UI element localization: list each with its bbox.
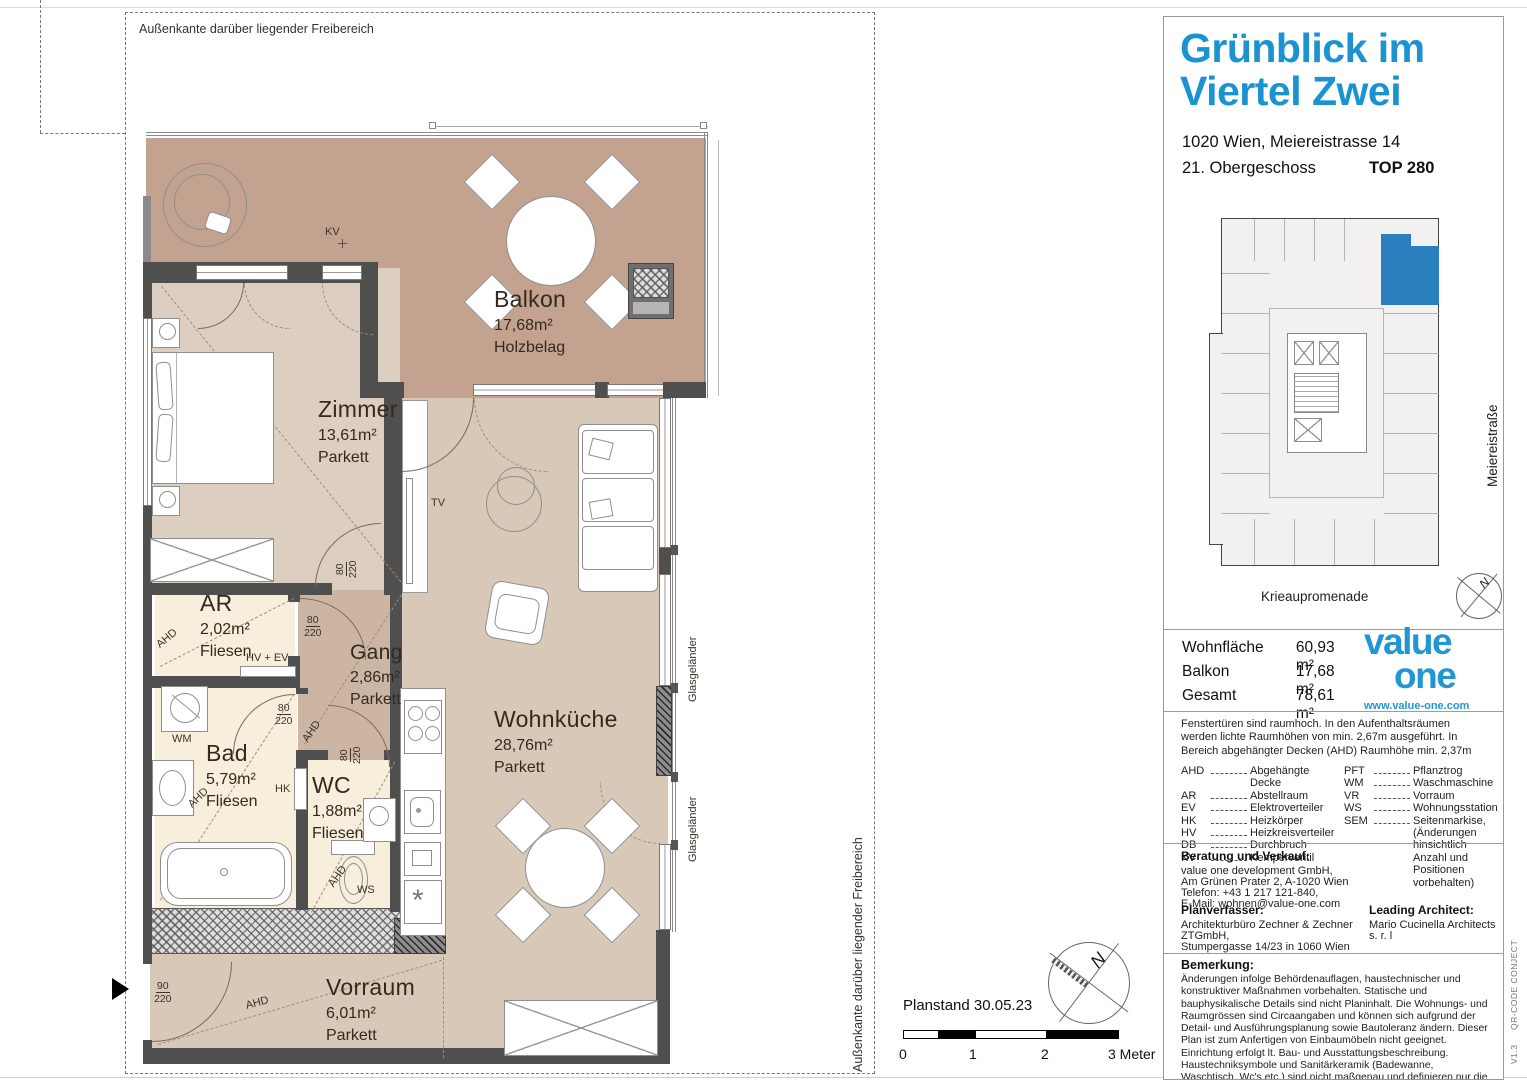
legend-desc: Abstellraum [1250, 790, 1341, 802]
unit-partition [1284, 219, 1285, 261]
unit-partition [1384, 313, 1439, 314]
door-dimension: 80220 [334, 560, 359, 578]
boundary-label-vertical: Außenkante darüber liegender Freibereich [851, 837, 865, 1072]
room-area: 13,61m² [318, 428, 398, 444]
legend-row: HVHeizkreisverteiler [1181, 827, 1341, 839]
balcony-railing-top [146, 132, 708, 136]
legend-abbr: HV [1181, 827, 1211, 839]
architect-line: Mario Cucinella Architects s. r. l [1369, 920, 1497, 942]
balcony-table [506, 196, 596, 286]
kv-label: KV [325, 226, 340, 238]
key-plan: Krieaupromenade [1209, 213, 1449, 565]
window [322, 265, 362, 280]
area-label: Wohnfläche [1182, 639, 1296, 663]
wall-segment [663, 382, 706, 398]
unit-partition [1222, 473, 1270, 474]
railing-post [671, 545, 678, 555]
elevator [1294, 418, 1322, 442]
glass-railing [672, 398, 676, 932]
room-floor: Fliesen [206, 794, 258, 810]
room-name: Balkon [494, 288, 566, 311]
coffee-table-small [497, 467, 535, 505]
room-label-bad: Bad 5,79m² Fliesen [206, 742, 258, 810]
glass-railing-label: Glasgeländer [687, 637, 699, 702]
bath-sink-basin [159, 770, 186, 806]
room-label-ar: AR 2,02m² Fliesen [200, 592, 252, 660]
ws-label: WS [357, 884, 375, 896]
legend-row: SEMSeitenmarkise, (Änderungen hinsichtli… [1344, 815, 1494, 889]
door-dimension: 80220 [338, 746, 363, 764]
utility-cabinet [240, 666, 296, 677]
legend-leader [1374, 802, 1410, 811]
balcony-wall-stub [143, 196, 151, 266]
room-floor: Parkett [350, 692, 403, 708]
value-one-logo: value one www.value-one.com [1364, 625, 1494, 712]
room-name: Vorraum [326, 976, 415, 999]
room-name: Zimmer [318, 398, 398, 421]
unit-partition [1222, 273, 1270, 274]
entrance-dimension: 90220 [154, 980, 172, 1005]
hk-label: HK [275, 783, 290, 795]
unit-partition [1222, 513, 1270, 514]
legend-leader [1211, 790, 1247, 799]
project-floor: 21. Obergeschoss [1182, 159, 1316, 178]
planter-top [633, 268, 669, 298]
planner-block: Architekturbüro Zechner & Zechner ZTGmbH… [1181, 920, 1366, 953]
compass: N [1048, 942, 1130, 1024]
door-height: 220 [351, 746, 363, 764]
wall-segment [296, 688, 308, 694]
scalebar-segment [975, 1030, 1047, 1039]
burner [425, 726, 440, 741]
room-floor: Parkett [494, 760, 618, 776]
awning-marker-2 [700, 122, 707, 129]
legend-desc: Pflanztrog [1413, 765, 1494, 777]
legend-row: WMWaschmaschine [1344, 777, 1494, 789]
radiator [294, 768, 307, 810]
legend-row: HKHeizkörper [1181, 815, 1341, 827]
project-title-line1: Grünblick im [1180, 27, 1490, 70]
unit-partition [1344, 219, 1345, 261]
legend-desc: Seitenmarkise, (Änderungen hinsichtlich … [1413, 815, 1494, 889]
armchair-seat [493, 593, 541, 636]
unit-partition [1222, 433, 1270, 434]
legend-leader [1211, 765, 1247, 774]
scale-tick-3: 3 Meter [1108, 1046, 1155, 1062]
area-row: Balkon17,68 m² [1182, 663, 1352, 687]
legend-abbr: WS [1344, 802, 1374, 814]
legend-leader [1374, 777, 1410, 786]
door-width: 80 [338, 748, 351, 762]
unit-partition [1254, 219, 1255, 261]
room-area: 2,02m² [200, 622, 252, 638]
highlighted-unit [1381, 234, 1411, 305]
scale-tick-1: 1 [969, 1046, 977, 1062]
window [659, 398, 671, 548]
contact-heading: Beratung und Verkauf: [1181, 849, 1310, 863]
project-title: Grünblick im Viertel Zwei [1180, 27, 1490, 114]
section-divider [1164, 843, 1503, 844]
unit-partition [1254, 519, 1255, 565]
area-label: Gesamt [1182, 687, 1296, 711]
legend-row: AHDAbgehängte Decke [1181, 765, 1341, 790]
scale-tick-2: 2 [1041, 1046, 1049, 1062]
info-panel: Grünblick im Viertel Zwei 1020 Wien, Mei… [1163, 16, 1504, 1080]
balcony-railing-right [704, 132, 708, 398]
door-dimension: 80220 [275, 702, 293, 727]
street-label-bottom: Krieaupromenade [1261, 589, 1368, 604]
room-label-zimmer: Zimmer 13,61m² Parkett [318, 398, 398, 466]
wc-sink-basin [369, 806, 389, 826]
burner [408, 726, 423, 741]
keyplan-compass: N [1456, 573, 1502, 619]
window [196, 265, 288, 280]
railing-post [671, 683, 678, 693]
door-width: 80 [277, 702, 291, 715]
building-wing [1209, 333, 1223, 545]
unit-partition [1384, 473, 1439, 474]
page-top-rule [0, 7, 1527, 8]
area-row: Gesamt78,61 m² [1182, 687, 1352, 711]
elevator [1294, 341, 1314, 365]
room-area: 1,88m² [312, 804, 364, 820]
project-address: 1020 Wien, Meiereistrasse 14 [1182, 133, 1400, 152]
street-label-right: Meiereistraße [1485, 404, 1500, 487]
legend-desc: Vorraum [1413, 790, 1494, 802]
planter-base [633, 302, 669, 314]
unit-partition [1334, 519, 1335, 565]
burner [408, 706, 423, 721]
unit-number: TOP 280 [1369, 159, 1434, 178]
legend-right-column: PFTPflanztrog WMWaschmaschine VRVorraum … [1344, 765, 1494, 889]
remark-text: Änderungen infolge Behördenauflagen, hau… [1181, 974, 1489, 1080]
sofa-cushion [582, 526, 654, 570]
room-floor: Parkett [326, 1028, 415, 1044]
window-height-note: Fenstertüren sind raumhoch. In den Aufen… [1181, 718, 1486, 758]
lamp [159, 323, 176, 340]
room-floor: Fliesen [312, 826, 364, 842]
area-row: Wohnfläche60,93 m² [1182, 639, 1352, 663]
room-area: 2,86m² [350, 670, 403, 686]
legend-abbr: PFT [1344, 765, 1374, 777]
railing-post [671, 772, 678, 782]
legend-desc: Elektroverteiler [1250, 802, 1341, 814]
room-name: AR [200, 592, 252, 615]
logo-word-one: one [1394, 659, 1494, 693]
awning-marker [429, 122, 436, 129]
extractor-symbol: * [412, 884, 424, 918]
room-floor: Holzbelag [494, 340, 566, 356]
legend-abbr: HK [1181, 815, 1211, 827]
wardrobe [150, 538, 274, 582]
window [659, 844, 671, 930]
legend-abbr: VR [1344, 790, 1374, 802]
unit-partition [1384, 353, 1439, 354]
scalebar-segment [903, 1030, 939, 1039]
area-value: 78,61 m² [1296, 687, 1352, 711]
legend-desc: Abgehängte Decke [1250, 765, 1341, 790]
throw-pillow [589, 498, 614, 520]
legend-row: EVElektroverteiler [1181, 802, 1341, 814]
boundary-label: Außenkante darüber liegender Freibereich [139, 22, 374, 36]
door-height: 220 [154, 993, 172, 1005]
legend-leader [1374, 790, 1410, 799]
highlighted-unit-2 [1411, 246, 1439, 305]
tv-panel [406, 478, 413, 584]
remark-heading: Bemerkung: [1181, 958, 1254, 972]
burner [425, 706, 440, 721]
window [473, 384, 597, 396]
unit-partition [1374, 519, 1375, 565]
awning-line [432, 126, 708, 127]
window [607, 384, 665, 396]
hv-ev-label: HV + EV [246, 652, 289, 664]
dishwasher-symbol [412, 850, 432, 866]
staircase [1294, 373, 1339, 413]
room-floor: Parkett [318, 450, 398, 466]
door-height: 220 [275, 715, 293, 727]
planner-line: Architekturbüro Zechner & Zechner ZTGmbH… [1181, 920, 1366, 942]
outer-edge-line [718, 140, 719, 396]
room-name: WC [312, 774, 364, 797]
area-table: Wohnfläche60,93 m² Balkon17,68 m² Gesamt… [1182, 639, 1352, 711]
legend-row: WSWohnungsstation [1344, 802, 1494, 814]
edge-version-label: QR-CODE CONJECT [1509, 940, 1519, 1030]
lamp [159, 491, 176, 508]
wm-label: WM [172, 733, 192, 745]
plan-date: Planstand 30.05.23 [903, 997, 1032, 1014]
wall-segment-insulated [656, 686, 672, 776]
legend-abbr: AR [1181, 790, 1211, 802]
unit-partition [1294, 519, 1295, 565]
kv-valve-icon-v [342, 239, 343, 248]
tv-label: TV [431, 497, 445, 509]
architect-heading: Leading Architect: [1369, 903, 1474, 917]
unit-partition [1384, 433, 1439, 434]
unit-partition [1222, 353, 1270, 354]
legend-leader [1374, 765, 1410, 774]
bed-headboard-line [176, 353, 177, 483]
planner-line: Stumpergasse 14/23 in 1060 Wien [1181, 942, 1366, 953]
scale-tick-0: 0 [899, 1046, 907, 1062]
room-label-balkon: Balkon 17,68m² Holzbelag [494, 288, 566, 356]
window [143, 318, 152, 506]
room-boundary-dashed [443, 952, 444, 1058]
sink-basin [410, 797, 434, 827]
wall-segment [659, 548, 671, 574]
legend-leader [1374, 815, 1410, 824]
wall-segment [656, 930, 670, 1050]
door-height: 220 [304, 627, 322, 639]
unit-partition [1222, 313, 1270, 314]
dashed-boundary-fragment-v [40, 0, 41, 133]
room-name: Gang [350, 642, 403, 663]
legend-leader [1211, 802, 1247, 811]
door-width: 80 [334, 562, 347, 576]
door-dimension: 80220 [304, 614, 322, 639]
room-area: 17,68m² [494, 318, 566, 334]
bathtub-drain [220, 868, 228, 876]
unit-partition [1314, 219, 1315, 261]
glass-railing-label: Glasgeländer [687, 797, 699, 862]
sink-drain [416, 808, 421, 813]
entrance-arrow-icon [112, 978, 129, 1000]
room-name: Wohnküche [494, 708, 618, 731]
legend-desc: Waschmaschine [1413, 777, 1494, 789]
elevator [1319, 341, 1339, 365]
room-label-vorraum: Vorraum 6,01m² Parkett [326, 976, 415, 1044]
room-area: 5,79m² [206, 772, 258, 788]
area-value: 17,68 m² [1296, 663, 1352, 687]
room-label-wohnkueche: Wohnküche 28,76m² Parkett [494, 708, 618, 776]
wall-segment [306, 750, 328, 760]
legend-abbr: EV [1181, 802, 1211, 814]
planner-heading: Planverfasser: [1181, 903, 1264, 917]
area-label: Balkon [1182, 663, 1296, 687]
legend-abbr: WM [1344, 777, 1374, 789]
legend-row: VRVorraum [1344, 790, 1494, 802]
room-label-gang: Gang 2,86m² Parkett [350, 642, 403, 708]
door-width: 90 [156, 980, 170, 993]
room-floor: Fliesen [200, 644, 252, 660]
railing-post [671, 840, 678, 850]
door-height: 220 [347, 560, 359, 578]
legend-abbr: AHD [1181, 765, 1211, 790]
window [659, 574, 671, 686]
section-divider [1164, 953, 1503, 954]
unit-partition [1384, 393, 1439, 394]
unit-partition [1222, 393, 1270, 394]
section-divider [1164, 711, 1503, 712]
room-name: Bad [206, 742, 258, 765]
scalebar-segment [939, 1030, 975, 1039]
unit-partition [1384, 513, 1439, 514]
room-area: 28,76m² [494, 738, 618, 754]
legend-row: PFTPflanztrog [1344, 765, 1494, 777]
legend-desc: Wohnungsstation [1413, 802, 1498, 814]
floorplan-sheet: Außenkante darüber liegender Freibereich… [0, 0, 1527, 1080]
legend-row: ARAbstellraum [1181, 790, 1341, 802]
legend-desc: Heizkörper [1250, 815, 1341, 827]
entry-wardrobe [504, 1000, 658, 1056]
area-value: 60,93 m² [1296, 639, 1352, 663]
room-label-wc: WC 1,88m² Fliesen [312, 774, 364, 842]
project-title-line2: Viertel Zwei [1180, 70, 1490, 113]
edge-version-number: V1.3 [1509, 1045, 1519, 1065]
scalebar-segment [1047, 1030, 1119, 1039]
legend-desc: Heizkreisverteiler [1250, 827, 1341, 839]
legend-leader [1211, 815, 1247, 824]
toilet-tank [331, 840, 375, 855]
dashed-boundary-fragment-h [40, 133, 125, 134]
room-area: 6,01m² [326, 1006, 415, 1022]
door-width: 80 [306, 614, 320, 627]
logo-word-value: value [1364, 625, 1494, 659]
legend-leader [1211, 827, 1247, 836]
